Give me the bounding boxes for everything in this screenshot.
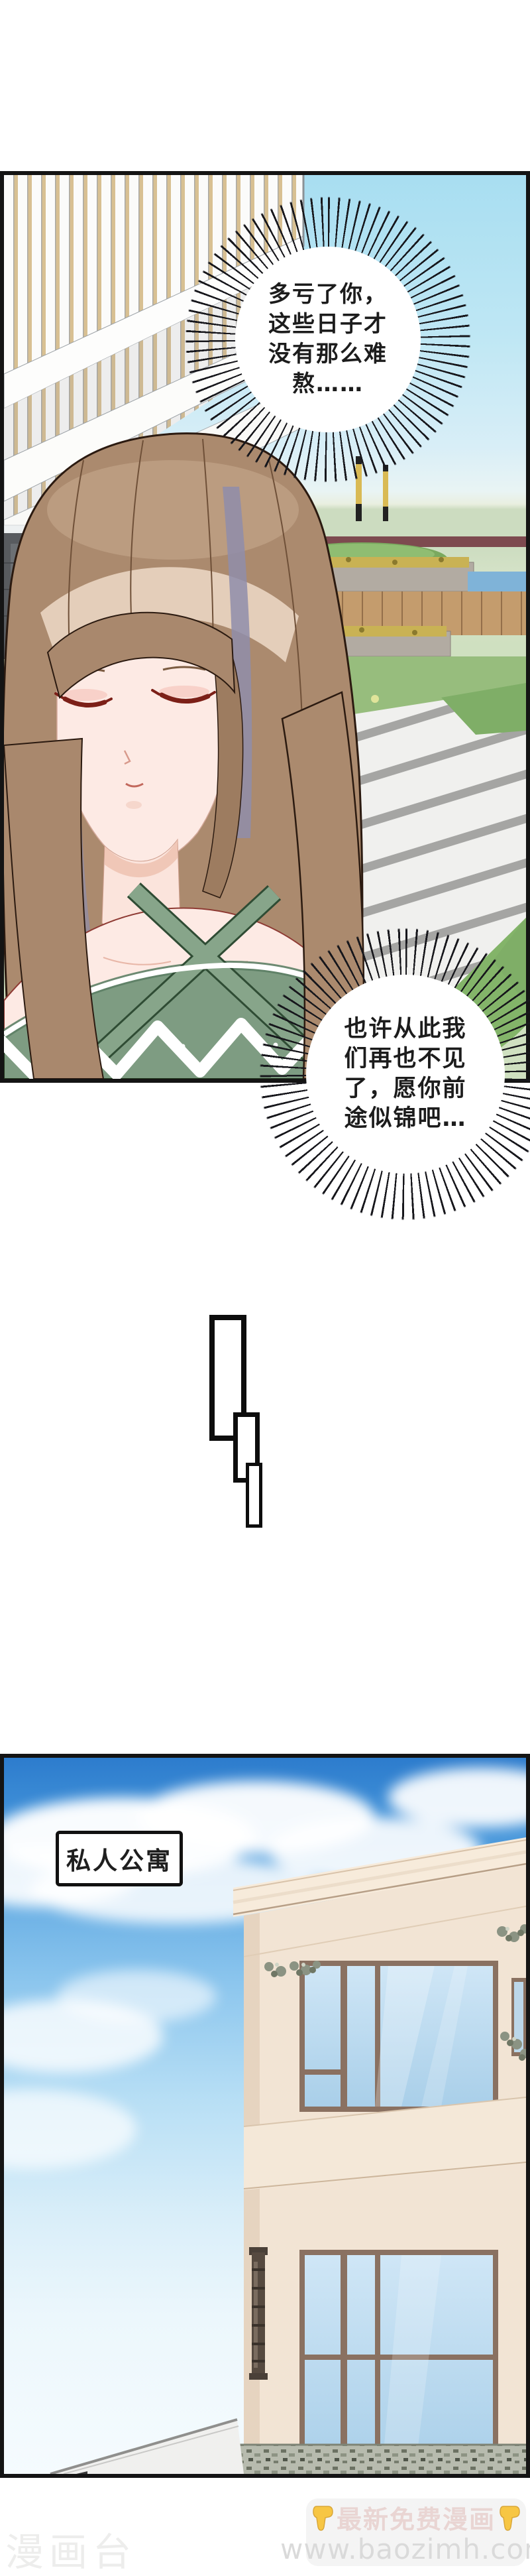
promo-watermark-box: 最新免费漫画 www.baozimh.com (306, 2498, 526, 2566)
speech-bubble-1: 多亏了你， 这些日子才 没有那么难 熬…… (235, 247, 421, 432)
hand-point-down-icon (498, 2504, 521, 2531)
site-watermark: 漫画台 (5, 2521, 136, 2576)
panel-2: 私人公寓 (0, 1754, 530, 2478)
apartment-building-illustration (233, 1837, 526, 2474)
roof-awning-illustration (50, 2420, 244, 2474)
speech-bubble-2-text: 也许从此我 们再也不见 了，愿你前 途似锦吧… (344, 1014, 466, 1134)
promo-url: www.baozimh.com (280, 2533, 530, 2565)
speech-bubble-1-text: 多亏了你， 这些日子才 没有那么难 熬…… (268, 280, 388, 399)
private-apartment-sign-label: 私人公寓 (66, 1841, 172, 1876)
speech-bubble-2: 也许从此我 们再也不见 了，愿你前 途似锦吧… (306, 975, 505, 1174)
promo-text: 最新免费漫画 (337, 2499, 496, 2536)
hand-point-down-icon (311, 2504, 334, 2531)
comic-page: 多亏了你， 这些日子才 没有那么难 熬…… 也许从此我 们再也不见 了，愿你前 … (0, 0, 530, 2576)
promo-line: 最新免费漫画 (311, 2499, 521, 2536)
private-apartment-sign: 私人公寓 (56, 1831, 183, 1886)
transition-rect-3 (246, 1463, 262, 1528)
